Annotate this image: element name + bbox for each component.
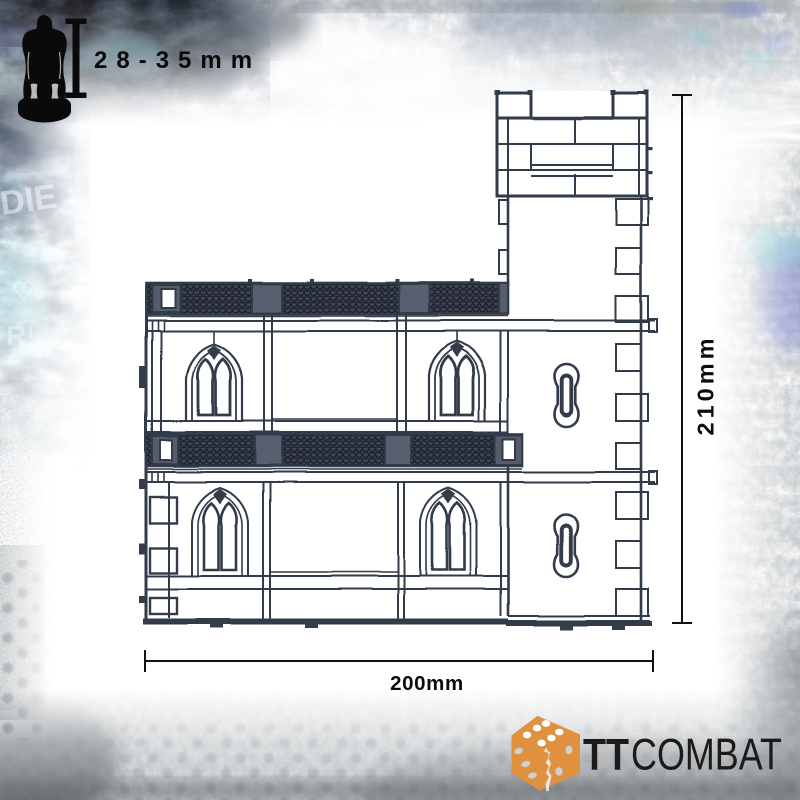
svg-text:COMBAT: COMBAT (631, 731, 782, 780)
svg-text:TT: TT (583, 731, 629, 780)
